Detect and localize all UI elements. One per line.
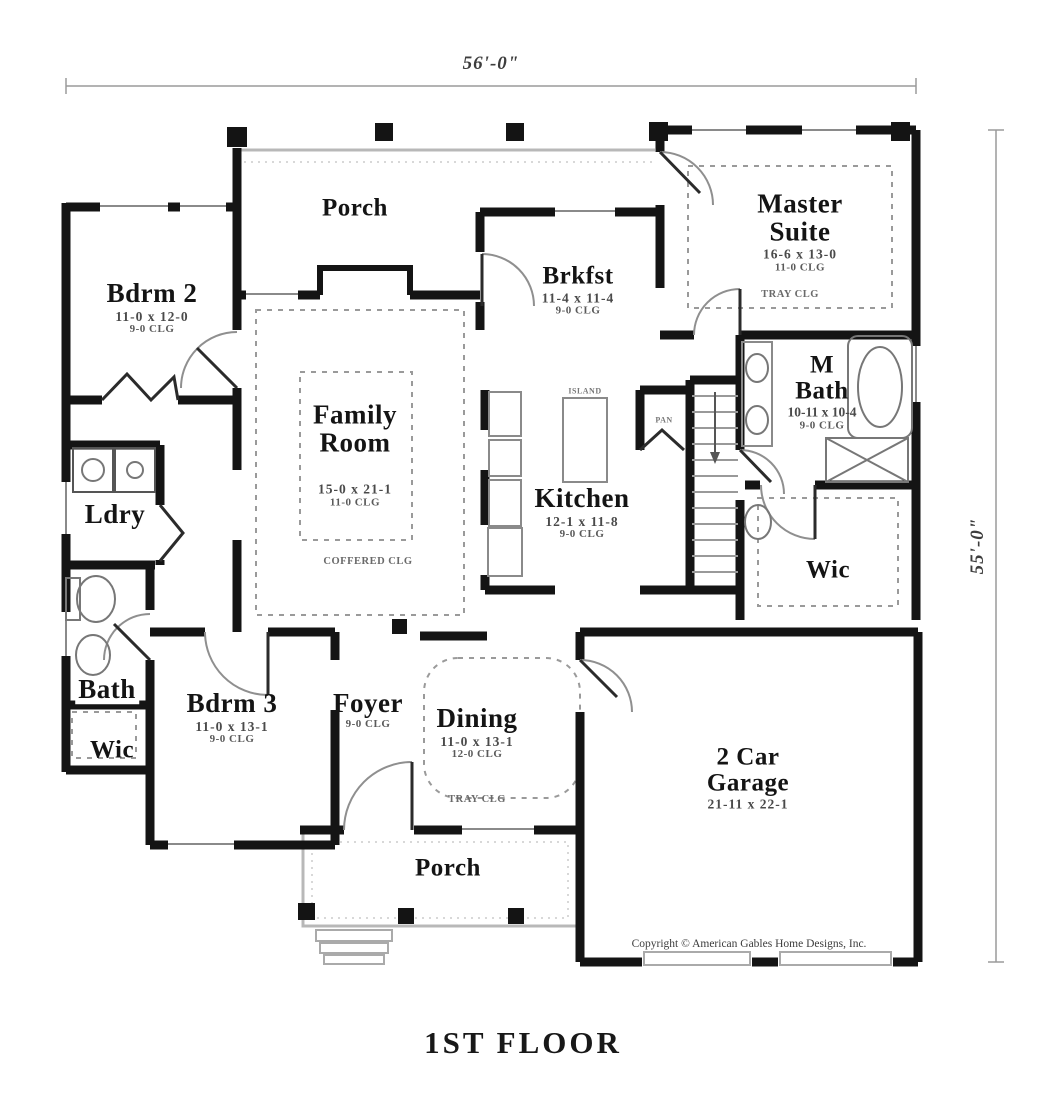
room-name: Family Room — [290, 401, 420, 456]
dimension-width: 56'-0" — [463, 53, 520, 75]
room-name: Dining — [402, 705, 552, 733]
room-label-brkfst: Brkfst 11-4 x 11-4 9-0 CLG — [508, 263, 648, 316]
room-size: 15-0 x 21-1 — [290, 483, 420, 497]
room-ceiling: 12-0 CLG — [402, 750, 552, 761]
room-size: 10-11 x 10-4 — [783, 406, 861, 420]
room-size: 16-6 x 13-0 — [735, 248, 865, 262]
room-ceiling: 9-0 CLG — [77, 325, 227, 336]
room-name: Wic — [90, 737, 134, 763]
room-name: Brkfst — [508, 263, 648, 289]
room-ceiling: 9-0 CLG — [783, 420, 861, 431]
plan-title: 1ST FLOOR — [424, 1025, 622, 1061]
dimension-height: 55'-0" — [967, 518, 989, 575]
room-name: Porch — [415, 855, 481, 881]
stairs — [692, 392, 738, 572]
island-label: ISLAND — [568, 387, 601, 396]
room-name: M Bath — [783, 353, 861, 404]
room-name: Bath — [75, 676, 139, 704]
room-label-kitchen: Kitchen 12-1 x 11-8 9-0 CLG — [502, 485, 662, 541]
room-label-master-suite: Master Suite 16-6 x 13-0 11-0 CLG — [735, 190, 865, 273]
room-label-garage: 2 Car Garage 21-11 x 22-1 — [693, 745, 803, 812]
room-label-m-bath: M Bath 10-11 x 10-4 9-0 CLG — [783, 353, 861, 432]
room-name: Ldry — [85, 501, 146, 529]
master-tray-note: TRAY CLG — [761, 289, 819, 301]
room-label-bath: Bath — [75, 676, 139, 704]
room-label-family-room: Family Room 15-0 x 21-1 11-0 CLG — [290, 401, 420, 508]
family-coffered-note: COFFERED CLG — [323, 556, 413, 568]
copyright-text: Copyright © American Gables Home Designs… — [632, 938, 867, 950]
room-ceiling: 11-0 CLG — [290, 497, 420, 508]
room-size: 11-0 x 13-1 — [142, 720, 322, 734]
room-label-wic-right: Wic — [806, 557, 850, 583]
room-size: 11-4 x 11-4 — [508, 291, 648, 305]
room-size: 11-0 x 12-0 — [77, 310, 227, 324]
room-name: Bdrm 2 — [77, 280, 227, 308]
floorplan-drawing — [0, 0, 1064, 1108]
room-size: 11-0 x 13-1 — [402, 735, 552, 749]
room-label-ldry: Ldry — [85, 501, 146, 529]
room-label-wic-left: Wic — [90, 737, 134, 763]
room-name: Master Suite — [735, 190, 865, 245]
room-name: Kitchen — [502, 485, 662, 513]
room-label-dining: Dining 11-0 x 13-1 12-0 CLG — [402, 705, 552, 761]
room-size: 12-1 x 11-8 — [502, 515, 662, 529]
room-name: 2 Car Garage — [693, 745, 803, 796]
room-name: Porch — [322, 195, 388, 221]
room-label-porch-top: Porch — [322, 195, 388, 221]
room-ceiling: 9-0 CLG — [502, 530, 662, 541]
dining-tray-note: TRAY CLG — [448, 794, 506, 806]
room-name: Bdrm 3 — [142, 690, 322, 718]
room-label-bdrm2: Bdrm 2 11-0 x 12-0 9-0 CLG — [77, 280, 227, 336]
floorplan-page: Porch Bdrm 2 11-0 x 12-0 9-0 CLG Master … — [0, 0, 1064, 1108]
room-size: 21-11 x 22-1 — [693, 798, 803, 812]
room-ceiling: 9-0 CLG — [508, 306, 648, 317]
room-ceiling: 11-0 CLG — [735, 262, 865, 273]
room-label-porch-bottom: Porch — [415, 855, 481, 881]
pantry-label: PAN — [655, 416, 672, 425]
room-label-bdrm3: Bdrm 3 11-0 x 13-1 9-0 CLG — [142, 690, 322, 746]
room-ceiling: 9-0 CLG — [142, 735, 322, 746]
room-name: Wic — [806, 557, 850, 583]
